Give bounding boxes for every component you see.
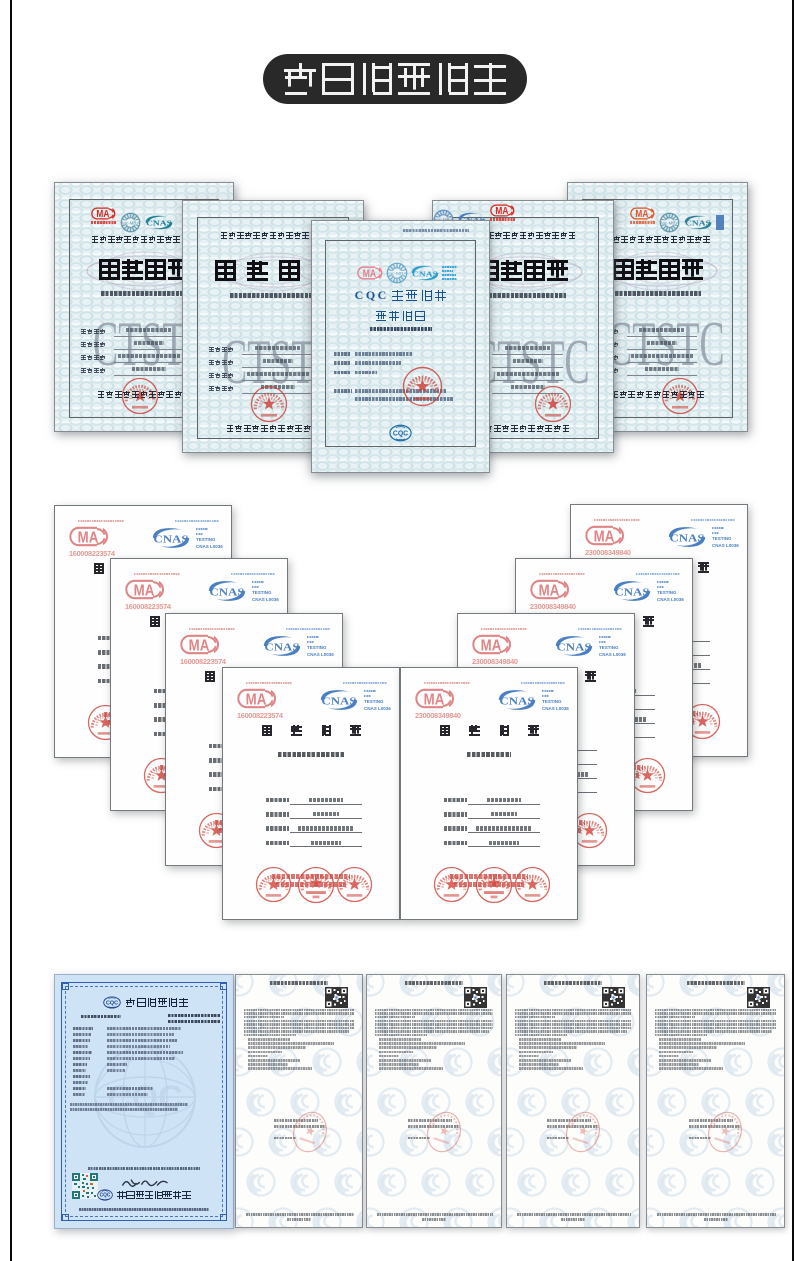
svg-text:CNAS: CNAS bbox=[210, 587, 245, 599]
svg-text:MA: MA bbox=[96, 209, 109, 220]
svg-text:CNAS: CNAS bbox=[685, 219, 712, 227]
svg-text:ilac-MRA: ilac-MRA bbox=[121, 221, 141, 226]
svg-text:MA: MA bbox=[78, 529, 99, 547]
svg-text:CQC: CQC bbox=[107, 1079, 183, 1117]
svg-text:MA: MA bbox=[481, 637, 502, 655]
svg-text:MA: MA bbox=[189, 637, 210, 655]
svg-text:CQC: CQC bbox=[393, 428, 409, 437]
svg-text:MA: MA bbox=[246, 691, 267, 709]
svg-text:MA: MA bbox=[363, 268, 377, 280]
svg-text:MA: MA bbox=[134, 582, 155, 600]
svg-text:MA: MA bbox=[539, 582, 560, 600]
svg-text:CNAS: CNAS bbox=[500, 696, 535, 708]
svg-text:CNAS: CNAS bbox=[615, 587, 650, 599]
svg-text:ilac-MRA: ilac-MRA bbox=[660, 221, 680, 226]
svg-text:MA: MA bbox=[635, 209, 648, 220]
svg-text:ilac-MRA: ilac-MRA bbox=[387, 271, 407, 277]
svg-text:MA: MA bbox=[424, 691, 445, 709]
svg-text:CNAS: CNAS bbox=[154, 534, 189, 546]
svg-text:MA: MA bbox=[594, 528, 615, 546]
svg-text:CNAS: CNAS bbox=[670, 533, 705, 545]
svg-text:CQC: CQC bbox=[106, 1000, 118, 1006]
svg-text:CNAS: CNAS bbox=[146, 219, 173, 227]
svg-text:CNAS: CNAS bbox=[322, 696, 357, 708]
svg-text:CNAS: CNAS bbox=[557, 642, 592, 654]
svg-text:CNAS: CNAS bbox=[412, 270, 438, 279]
svg-text:CNAS: CNAS bbox=[265, 642, 300, 654]
svg-text:CQC: CQC bbox=[100, 1193, 111, 1199]
svg-text:MA: MA bbox=[495, 206, 508, 217]
